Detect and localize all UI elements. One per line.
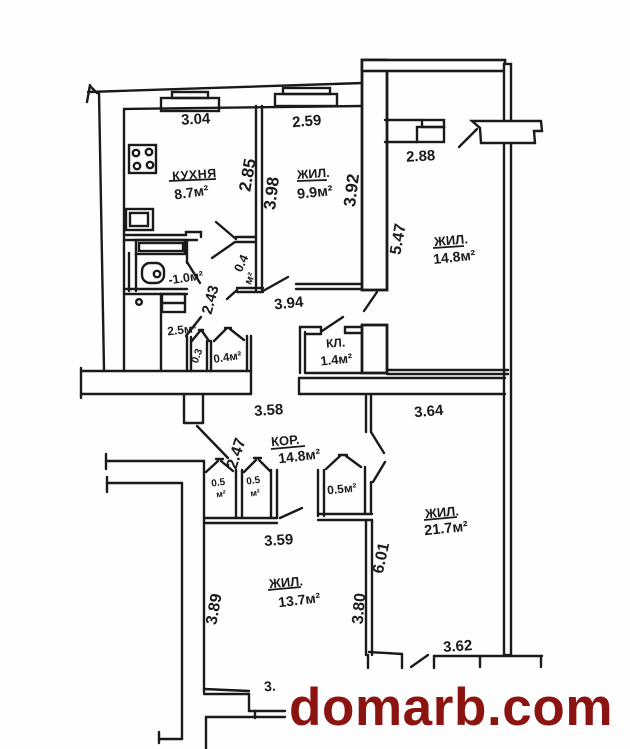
svg-text:3.62: 3.62 (443, 637, 473, 656)
svg-text:3.04: 3.04 (181, 110, 212, 129)
svg-text:2.59: 2.59 (291, 112, 322, 131)
svg-text:0.5: 0.5 (246, 475, 262, 488)
svg-text:3.94: 3.94 (273, 293, 304, 313)
svg-text:3.58: 3.58 (254, 401, 284, 420)
svg-text:3.92: 3.92 (340, 173, 363, 208)
svg-text:3.80: 3.80 (350, 592, 370, 625)
svg-text:м²: м² (215, 488, 226, 499)
svg-text:КЛ.: КЛ. (326, 335, 346, 350)
svg-text:м²: м² (250, 487, 261, 498)
svg-text:domarb.com: domarb.com (289, 678, 613, 737)
svg-text:3.98: 3.98 (260, 176, 283, 211)
svg-text:3.59: 3.59 (264, 531, 294, 550)
svg-text:2.88: 2.88 (406, 147, 436, 166)
svg-text:3.: 3. (263, 678, 276, 695)
svg-text:3.64: 3.64 (413, 402, 444, 422)
